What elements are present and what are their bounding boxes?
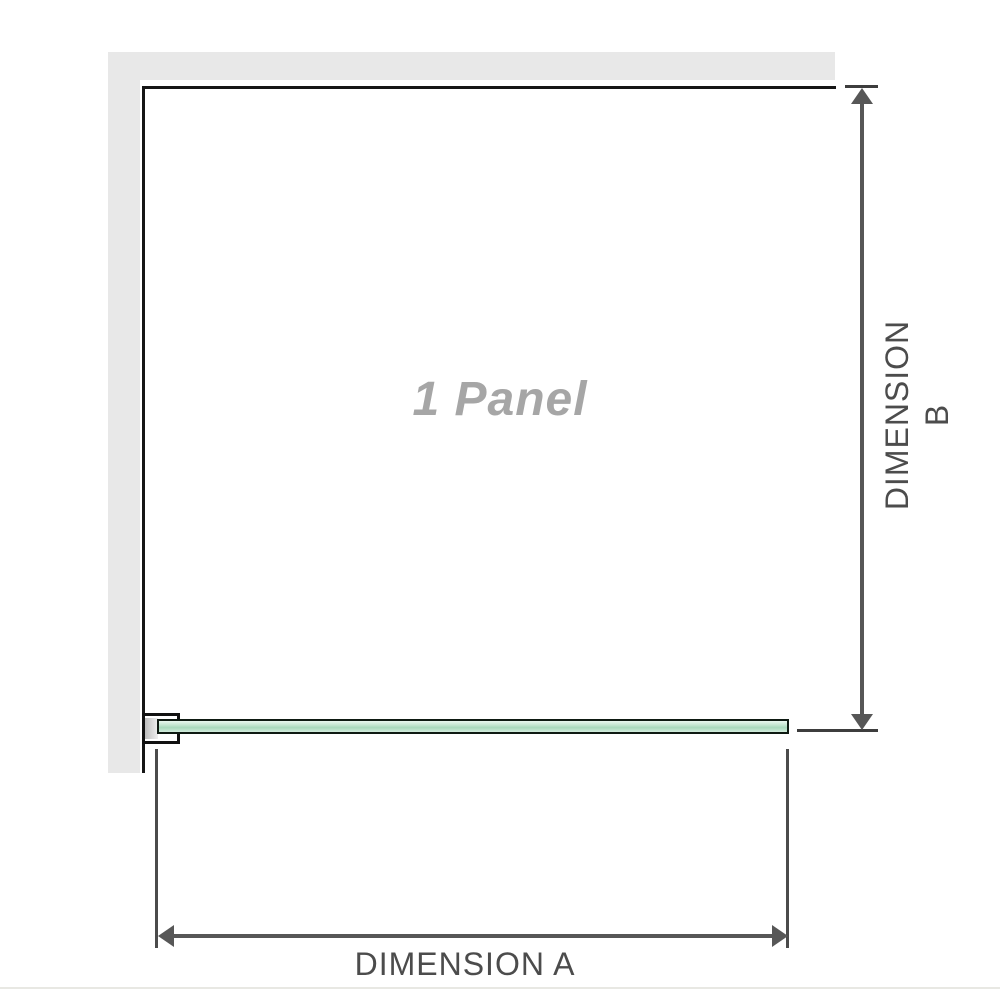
dimension-b-line	[860, 100, 864, 718]
arrow-down-icon	[851, 714, 873, 730]
arrow-up-icon	[851, 88, 873, 104]
panel-top-edge	[142, 86, 836, 89]
dimension-a-extension-left	[155, 749, 158, 948]
dimension-b-label: DIMENSION B	[877, 305, 917, 525]
dimension-a-line	[162, 934, 784, 938]
wall-top-bar	[108, 52, 835, 80]
dimension-a-extension-right	[786, 749, 789, 948]
panel-left-edge	[142, 86, 145, 773]
bottom-divider	[0, 987, 1000, 989]
dimension-a-label: DIMENSION A	[315, 944, 615, 984]
panel-count-label: 1 Panel	[340, 368, 660, 432]
wall-left-column	[108, 52, 140, 773]
panel-dimension-diagram: 1 Panel DIMENSION B DIMENSION A	[0, 0, 1000, 1000]
arrow-right-icon	[772, 925, 788, 947]
glass-panel-bar	[157, 719, 789, 734]
arrow-left-icon	[158, 925, 174, 947]
